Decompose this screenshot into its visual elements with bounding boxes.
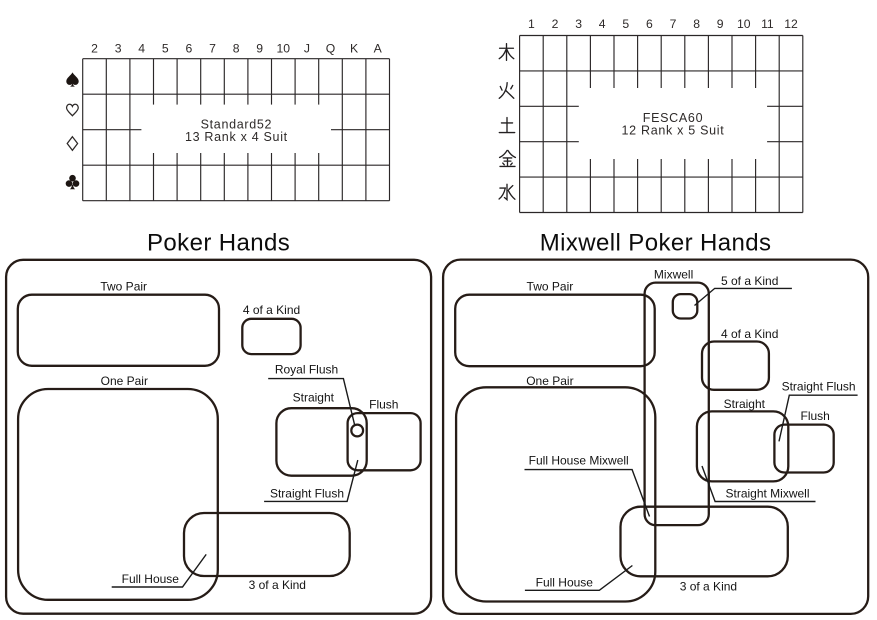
svg-text:3 of a Kind: 3 of a Kind	[680, 580, 737, 594]
svg-text:K: K	[350, 41, 358, 55]
svg-text:3: 3	[575, 17, 582, 31]
svg-text:Mixwell Poker Hands: Mixwell Poker Hands	[540, 230, 772, 257]
svg-text:7: 7	[670, 17, 677, 31]
svg-text:Two Pair: Two Pair	[100, 280, 147, 294]
svg-text:A: A	[374, 41, 383, 55]
svg-text:Poker Hands: Poker Hands	[147, 230, 290, 257]
svg-text:13 Rank x 4 Suit: 13 Rank x 4 Suit	[185, 130, 288, 144]
svg-text:5 of a Kind: 5 of a Kind	[721, 274, 778, 288]
svg-text:9: 9	[717, 17, 724, 31]
svg-text:6: 6	[646, 17, 653, 31]
svg-text:Straight: Straight	[293, 390, 335, 404]
svg-text:One Pair: One Pair	[526, 374, 573, 388]
svg-text:7: 7	[209, 41, 216, 55]
svg-text:2: 2	[552, 17, 559, 31]
svg-text:5: 5	[622, 17, 629, 31]
svg-text:Full House: Full House	[122, 572, 180, 586]
svg-text:8: 8	[693, 17, 700, 31]
svg-text:One Pair: One Pair	[101, 374, 148, 388]
svg-text:Two Pair: Two Pair	[527, 280, 574, 294]
svg-text:8: 8	[233, 41, 240, 55]
svg-text:3 of a Kind: 3 of a Kind	[249, 578, 306, 592]
svg-text:3: 3	[115, 41, 122, 55]
svg-text:Full House: Full House	[536, 575, 594, 589]
svg-text:9: 9	[256, 41, 263, 55]
svg-text:Straight Mixwell: Straight Mixwell	[725, 487, 809, 501]
svg-text:10: 10	[737, 17, 751, 31]
svg-text:Q: Q	[326, 41, 335, 55]
svg-text:1: 1	[528, 17, 535, 31]
svg-text:4: 4	[599, 17, 606, 31]
svg-text:Flush: Flush	[369, 398, 398, 412]
svg-text:Mixwell: Mixwell	[654, 268, 693, 282]
svg-text:Straight Flush: Straight Flush	[782, 379, 856, 393]
svg-text:12: 12	[784, 17, 798, 31]
svg-text:4 of a Kind: 4 of a Kind	[243, 303, 300, 317]
svg-text:2: 2	[91, 41, 98, 55]
svg-text:6: 6	[186, 41, 193, 55]
svg-text:12 Rank x 5 Suit: 12 Rank x 5 Suit	[622, 124, 725, 138]
svg-text:Straight Flush: Straight Flush	[270, 487, 344, 501]
svg-text:4: 4	[138, 41, 145, 55]
svg-text:Full House Mixwell: Full House Mixwell	[529, 453, 629, 467]
svg-text:4 of a Kind: 4 of a Kind	[721, 327, 778, 341]
svg-text:11: 11	[761, 17, 774, 31]
svg-text:Royal Flush: Royal Flush	[275, 363, 338, 377]
svg-text:10: 10	[277, 41, 291, 55]
svg-text:J: J	[304, 41, 310, 55]
svg-text:Flush: Flush	[801, 409, 830, 423]
svg-text:Straight: Straight	[724, 397, 766, 411]
svg-text:5: 5	[162, 41, 169, 55]
